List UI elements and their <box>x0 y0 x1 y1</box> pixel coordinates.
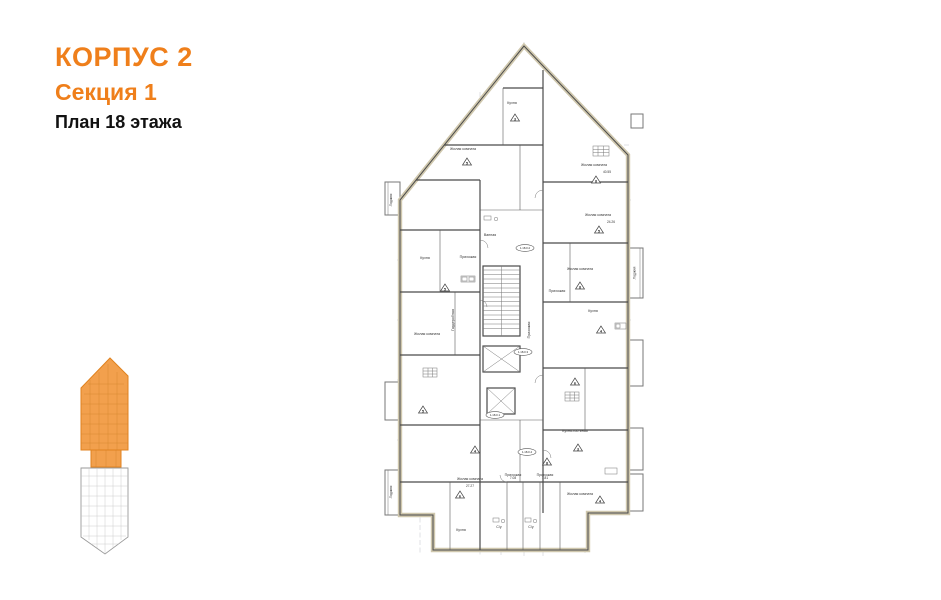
unit-marker: 6 <box>574 381 576 385</box>
section-title: Секция 1 <box>55 81 193 104</box>
apartment-tag: 1.18.0.1 <box>490 413 501 417</box>
key-plan-highlighted-section <box>81 358 128 467</box>
title-block: КОРПУС 2 Секция 1 План 18 этажа <box>55 44 193 131</box>
unit-marker: 8 <box>595 179 597 183</box>
room-label: Кухня-гостиная <box>562 429 587 433</box>
unit-marker: 3 <box>577 447 579 451</box>
unit-marker: 4 <box>600 329 602 333</box>
room-label: С/у <box>528 525 534 529</box>
unit-marker: 6 <box>459 494 461 498</box>
unit-marker: 8 <box>546 461 548 465</box>
room-label: Жилая комната <box>457 477 483 481</box>
room-area: 7.81 <box>542 476 548 480</box>
room-area: 24.26 <box>607 220 615 224</box>
room-label: Жилая комната <box>567 492 593 496</box>
room-label: Кухня <box>507 101 517 105</box>
unit-marker: 5 <box>598 229 600 233</box>
key-plan-other-section <box>81 468 128 554</box>
room-label: Жилая комната <box>585 213 611 217</box>
room-label: Жилая комната <box>581 163 607 167</box>
room-label: Лоджия <box>633 267 637 280</box>
room-label: Гардеробная <box>451 309 455 331</box>
building-title: КОРПУС 2 <box>55 44 193 71</box>
room-label: Кухня <box>588 309 598 313</box>
page-canvas: КОРПУС 2 Секция 1 План 18 этажа <box>0 0 941 600</box>
apartment-tag: 1.18.0.4 <box>522 450 533 454</box>
unit-marker: 3 <box>514 117 516 121</box>
room-label: С/у <box>496 525 502 529</box>
room-area: 27.27 <box>466 484 474 488</box>
apartment-tag: 1.18.0.2 <box>520 246 531 250</box>
room-area: 7.08 <box>510 476 516 480</box>
unit-marker: 5 <box>466 161 468 165</box>
unit-marker: 5 <box>444 287 446 291</box>
room-area: 40.55 <box>603 170 611 174</box>
unit-marker: 5 <box>422 409 424 413</box>
apartment-tag: 1.18.0.3 <box>518 350 529 354</box>
unit-marker: 8 <box>579 285 581 289</box>
unit-marker: 4 <box>599 499 601 503</box>
key-plan <box>74 350 144 562</box>
room-label: Кухня <box>456 528 466 532</box>
unit-marker: 4 <box>474 449 476 453</box>
room-label: Жилая комната <box>450 147 476 151</box>
room-label: Прихожая <box>460 255 477 259</box>
room-label: Лоджия <box>389 486 393 499</box>
floor-plan: Кухня Жилая комната Жилая комната 40.55 … <box>375 30 665 570</box>
room-label: Ванная <box>484 233 496 237</box>
room-label: Прихожая <box>527 322 531 339</box>
floor-title: План 18 этажа <box>55 113 193 131</box>
room-label: Жилая комната <box>414 332 440 336</box>
room-label: Лоджия <box>389 194 393 207</box>
room-label: Прихожая <box>549 289 566 293</box>
room-label: Кухня <box>420 256 430 260</box>
room-label: Жилая комната <box>567 267 593 271</box>
